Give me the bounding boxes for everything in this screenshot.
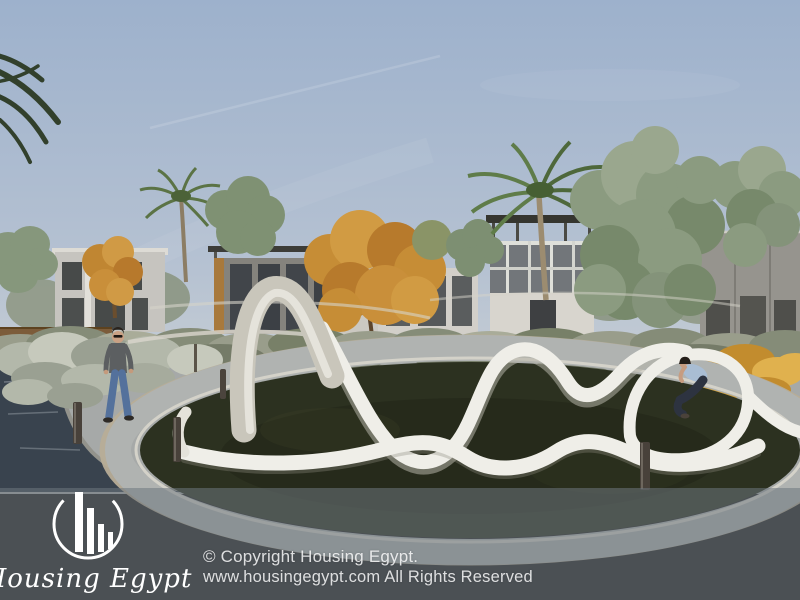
bollard <box>640 442 650 490</box>
copyright-line2: www.housingegypt.com All Rights Reserved <box>203 567 533 588</box>
shoe <box>103 417 113 422</box>
building-bars-icon <box>75 492 113 554</box>
bollard <box>173 417 181 462</box>
cloud <box>480 69 740 101</box>
watermark-overlay: Housing Egypt © Copyright Housing Egypt.… <box>0 488 800 600</box>
copyright-line1: © Copyright Housing Egypt. <box>203 546 533 567</box>
bollard <box>220 369 226 399</box>
bollard <box>73 402 82 444</box>
shoe <box>681 414 690 419</box>
shoe <box>124 415 134 420</box>
brand-script-text: Housing Egypt <box>0 564 192 594</box>
light-pole <box>194 344 197 372</box>
copyright-block: © Copyright Housing Egypt. www.housingeg… <box>203 546 533 588</box>
architectural-render-screenshot: Housing Egypt © Copyright Housing Egypt.… <box>0 0 800 600</box>
housing-egypt-logo: Housing Egypt <box>0 488 200 600</box>
sunglasses <box>114 335 123 338</box>
